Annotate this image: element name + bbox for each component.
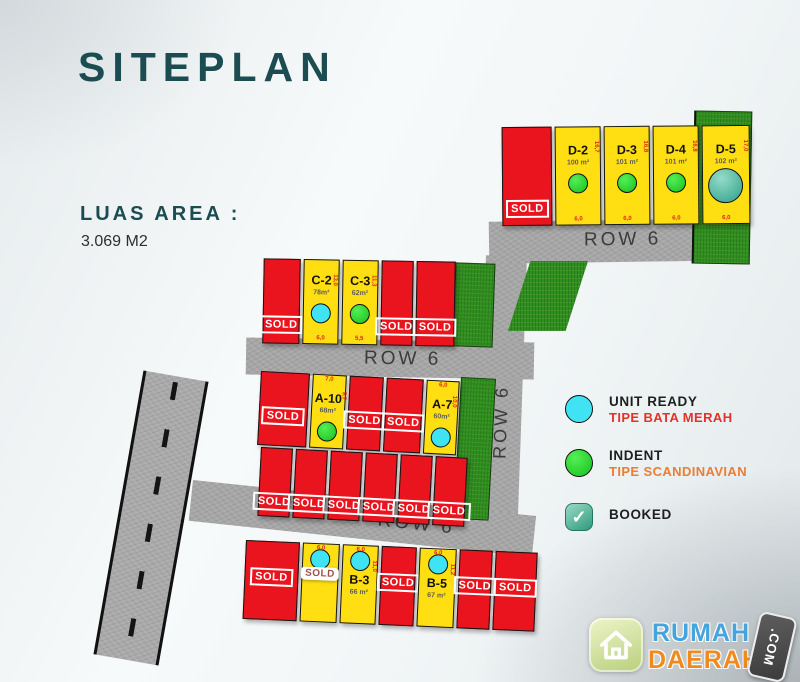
legend: UNIT READY TIPE BATA MERAH INDENT TIPE S… <box>565 394 790 554</box>
plot-d-5: 17,0D-5102 m²6,0 <box>702 125 751 224</box>
plot-d-2: 16,7D-2100 m²6,0 <box>555 126 602 225</box>
legend-label: BOOKED <box>609 507 672 523</box>
legend-label: UNIT READY <box>609 394 732 410</box>
booked-check-icon: ✓ <box>565 503 593 531</box>
plot-id-label: B-3 <box>349 574 370 588</box>
sold-badge-white: SOLD <box>301 566 339 581</box>
unit-ready-marker-icon <box>565 395 593 423</box>
plot-id-label: A-10 <box>315 392 343 406</box>
dimension-label: 7,0 <box>313 376 346 385</box>
plot-b-3: 6,011,0B-366 m² <box>339 544 379 625</box>
block-a-top-row: SOLD7,09,7A-1068m²SOLDSOLD6,010,0A-760m² <box>257 371 460 455</box>
plot-id-label: D-2 <box>568 144 588 157</box>
plot-sold: SOLD <box>346 376 384 452</box>
road-centerline <box>125 382 178 655</box>
indent-marker-icon <box>666 172 686 192</box>
plot-c-3: 11,3C-362m²5,5 <box>341 260 378 346</box>
indent-marker-icon <box>565 449 593 477</box>
plot-c-2: 13,0C-278m²6,0 <box>303 259 340 345</box>
plot-sold: SOLD <box>262 258 301 344</box>
indent-marker-icon <box>316 421 337 442</box>
legend-row-indent: INDENT TIPE SCANDINAVIAN <box>565 448 790 479</box>
plot-id-label: C-2 <box>311 274 331 287</box>
plot-area-label: 100 m² <box>567 159 589 166</box>
plot-id-label: D-5 <box>716 143 736 156</box>
grass-patch <box>453 262 496 347</box>
dimension-label: 6,0 <box>654 215 698 222</box>
plot-sold: SOLD <box>456 549 493 629</box>
dimension-label: 6,0 <box>557 216 601 223</box>
block-c: SOLD13,0C-278m²6,011,3C-362m²5,5SOLDSOLD <box>262 258 455 346</box>
dimension-label: 6,0 <box>703 215 749 222</box>
sold-badge: SOLD <box>260 315 303 334</box>
plot-sold: SOLD <box>257 371 309 447</box>
plot-sold: SOLD <box>380 260 414 346</box>
dimension-label: 6,0 <box>304 335 338 343</box>
dimension-label: 16,8 <box>641 140 648 152</box>
sold-badge: SOLD <box>375 317 418 336</box>
plot-area-label: 66 m² <box>350 589 369 597</box>
sold-badge: SOLD <box>376 573 419 593</box>
sold-badge: SOLD <box>261 406 304 426</box>
plot-area-label: 60m² <box>433 413 450 421</box>
plot-b-5: 6,011,2B-567 m² <box>417 548 457 629</box>
block-a-bottom-row: SOLDSOLDSOLDSOLDSOLDSOLD <box>257 447 467 527</box>
plot-area-label: 102 m² <box>715 158 737 165</box>
dimension-label: 11,3 <box>370 275 377 286</box>
logo: RUMAH DAERAH .COM <box>585 610 800 682</box>
plot-area-label: 67 m² <box>427 592 446 600</box>
sold-badge: SOLD <box>343 410 386 430</box>
plot-d-3: 16,8D-3101 m²6,0 <box>604 126 651 225</box>
sold-badge: SOLD <box>414 318 457 337</box>
plot-area-label: 101 m² <box>616 159 638 166</box>
luas-area-label: LUAS AREA : <box>80 203 240 226</box>
sold-badge: SOLD <box>453 576 496 596</box>
dimension-label: 6,0 <box>304 545 339 554</box>
dimension-label: 16,7 <box>593 141 600 153</box>
logo-text-rumah: RUMAH <box>652 619 750 648</box>
ready-marker-icon <box>430 427 451 448</box>
dimension-label: 11,0 <box>370 560 377 572</box>
dimension-label: 6,0 <box>428 382 459 391</box>
sold-badge: SOLD <box>382 412 425 432</box>
indent-marker-icon <box>568 173 588 193</box>
legend-sublabel: TIPE BATA MERAH <box>609 410 732 425</box>
plot-d-4: 16,8D-4101 m²6,0 <box>653 125 700 224</box>
logo-com-tag: .COM <box>746 611 798 682</box>
block-d: SOLD16,7D-2100 m²6,016,8D-3101 m²6,016,8… <box>502 125 751 226</box>
legend-row-unit-ready: UNIT READY TIPE BATA MERAH <box>565 394 790 425</box>
dimension-label: 9,7 <box>339 391 346 400</box>
road-label: ROW 6 <box>364 348 442 371</box>
plot-area-label: 101 m² <box>665 158 687 165</box>
siteplan-canvas: SITEPLAN LUAS AREA : 3.069 M2 ROW 6 ROW … <box>0 0 800 682</box>
plot-id-label: D-4 <box>666 143 686 156</box>
dimension-label: 5,5 <box>342 336 376 344</box>
page-title: SITEPLAN <box>78 44 337 91</box>
logo-tag-text: .COM <box>760 627 783 667</box>
plot-a-7: 6,010,0A-760m² <box>423 380 459 456</box>
dimension-label: 10,0 <box>450 396 458 408</box>
legend-sublabel: TIPE SCANDINAVIAN <box>609 464 747 479</box>
plot-area-label: 62m² <box>352 290 368 297</box>
dimension-label: 6,0 <box>343 546 378 555</box>
dimension-label: 17,0 <box>741 140 748 152</box>
plot-id-label: C-3 <box>350 275 370 288</box>
indent-marker-icon <box>617 173 637 193</box>
plot-sold: SOLD <box>243 540 300 621</box>
legend-label: INDENT <box>609 448 747 464</box>
plot-sold: SOLD <box>502 127 553 226</box>
dimension-label: 6,0 <box>606 216 650 223</box>
ready-marker-icon <box>311 303 331 323</box>
indent-marker-icon <box>349 304 369 324</box>
dimension-label: 16,8 <box>690 140 697 152</box>
plot-sold: SOLD <box>432 456 468 527</box>
plot-area-label: 78m² <box>313 289 329 296</box>
sold-badge: SOLD <box>427 501 470 521</box>
plot-a-10: 7,09,7A-1068m² <box>309 374 347 450</box>
luas-area-value: 3.069 M2 <box>81 233 148 251</box>
plot-sold: SOLD <box>383 378 424 454</box>
sold-badge: SOLD <box>250 567 293 587</box>
plot-id-label: B-5 <box>427 577 448 591</box>
plot-id-label: D-3 <box>617 144 637 157</box>
legend-row-booked: ✓ BOOKED <box>565 502 790 531</box>
dimension-label: 13,0 <box>331 274 338 286</box>
plot-sold: SOLD <box>379 546 417 626</box>
sold-badge: SOLD <box>494 578 537 598</box>
house-icon <box>589 618 643 672</box>
plot-b-2: 6,0SOLD <box>299 542 339 623</box>
plot-sold: SOLD <box>492 551 537 632</box>
plot-sold: SOLD <box>415 261 456 347</box>
dimension-label: 6,0 <box>421 550 456 559</box>
logo-text-daerah: DAERAH <box>648 646 761 675</box>
block-b: SOLD6,0SOLD6,011,0B-366 m²SOLD6,011,2B-5… <box>243 540 538 632</box>
plot-area-label: 68m² <box>319 407 336 415</box>
ready-big-marker-icon <box>708 168 743 203</box>
dimension-label: 11,2 <box>447 564 454 576</box>
road-label: ROW 6 <box>584 228 662 251</box>
sold-badge: SOLD <box>506 200 549 218</box>
